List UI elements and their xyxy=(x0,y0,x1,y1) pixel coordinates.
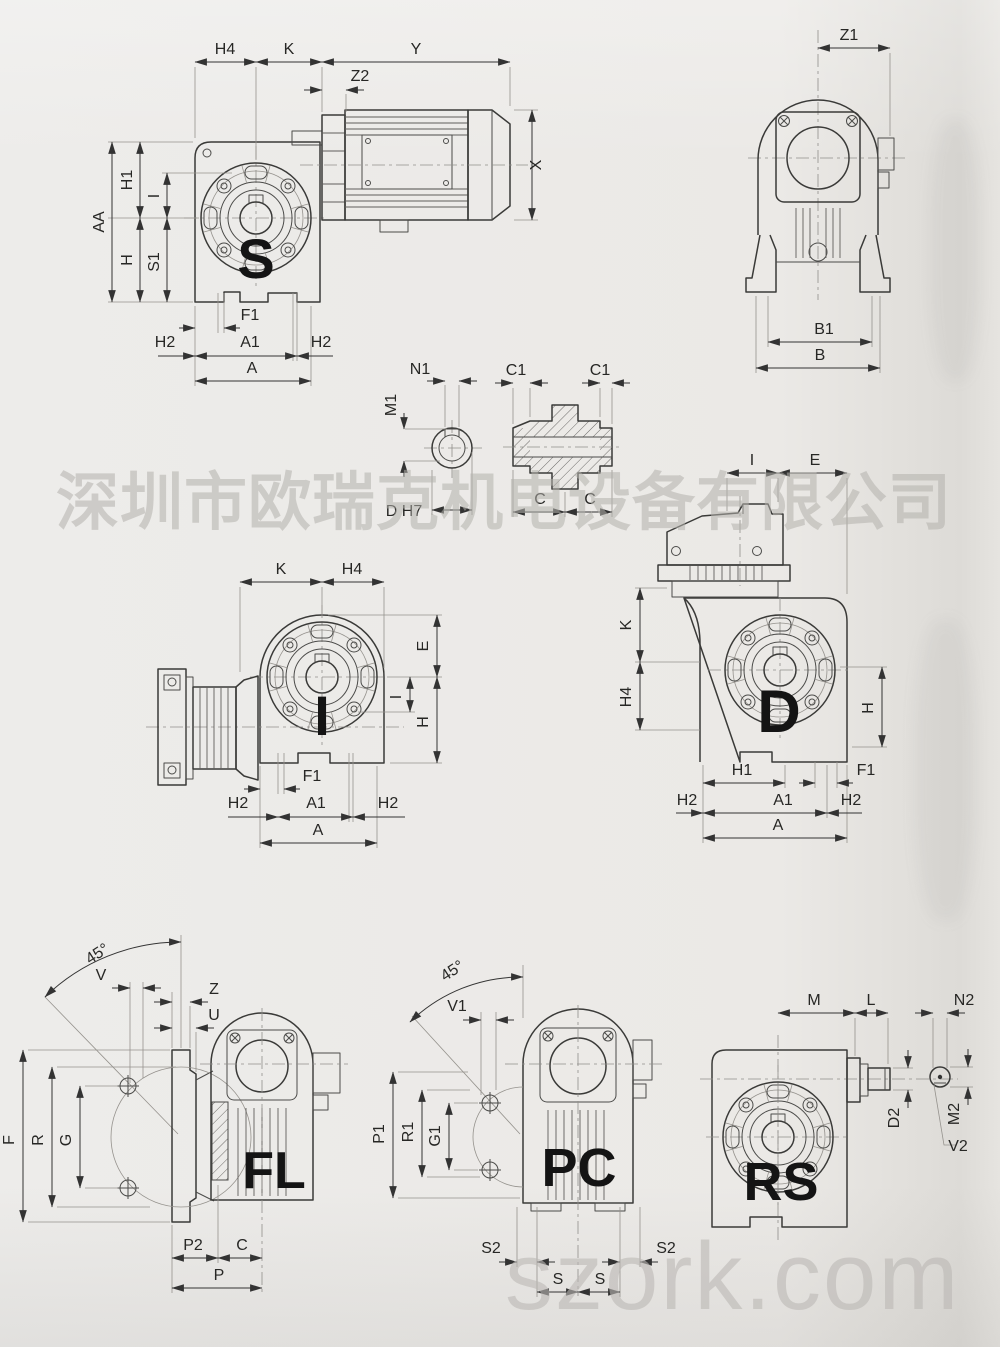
dim-label-f1: F1 xyxy=(241,307,260,324)
dim-label-m: M xyxy=(807,992,820,1009)
dim-label-c1: C1 xyxy=(506,362,527,379)
dim-label-45deg: 45° xyxy=(83,941,113,968)
dim-label-v2: V2 xyxy=(948,1138,968,1155)
view-label-fl: FL xyxy=(242,1142,306,1200)
dim-label-m1: M1 xyxy=(383,394,400,416)
dim-label-f1: F1 xyxy=(303,768,322,785)
dim-label-a1: A1 xyxy=(240,334,260,351)
view-i-gearbox: K H4 E I H F1 H2 A1 H2 A I xyxy=(146,561,442,848)
view-d-gearbox: I E K H4 H H1 F1 H2 A1 H2 A D xyxy=(618,452,887,843)
dim-label-f: F xyxy=(1,1135,18,1145)
dim-label-g1: G1 xyxy=(427,1125,444,1146)
dim-label-h4: H4 xyxy=(342,561,363,578)
dim-label-c: C xyxy=(584,491,596,508)
dim-label-x: X xyxy=(528,159,545,170)
dim-label-p2: P2 xyxy=(183,1237,203,1254)
view-rs-gearbox: M L N2 D2 M2 V2 RS xyxy=(700,992,974,1243)
view-fl-gearbox: 45° V Z U F R G P2 xyxy=(1,935,348,1296)
dim-label-45deg: 45° xyxy=(438,958,468,985)
view-s-gearbox-with-motor: H4 K Y Z2 X AA H1 H I S1 F1 H2 A1 H2 A S xyxy=(91,41,545,386)
dim-label-k: K xyxy=(618,619,635,630)
dim-label-r: R xyxy=(30,1134,47,1146)
dim-label-p1: P1 xyxy=(371,1124,388,1144)
dim-label-r1: R1 xyxy=(400,1122,417,1143)
dim-label-a1: A1 xyxy=(773,792,793,809)
dim-label-s: S xyxy=(595,1271,606,1288)
dim-label-aa: AA xyxy=(91,211,108,233)
dim-label-s1: S1 xyxy=(146,252,163,272)
dim-label-l: L xyxy=(867,992,876,1009)
view-label-d: D xyxy=(757,678,800,745)
dim-label-n1: N1 xyxy=(410,361,431,378)
dim-label-d-h7: D H7 xyxy=(386,503,423,520)
dim-label-h: H xyxy=(860,702,877,714)
dim-label-s: S xyxy=(553,1271,564,1288)
dim-label-a: A xyxy=(247,360,258,377)
dim-label-h4: H4 xyxy=(618,687,635,708)
dim-label-z1: Z1 xyxy=(840,27,859,44)
dim-label-k: K xyxy=(276,561,287,578)
dim-label-s2: S2 xyxy=(481,1240,501,1257)
dim-label-h4: H4 xyxy=(215,41,236,58)
dim-label-v: V xyxy=(96,967,107,984)
dim-label-p: P xyxy=(214,1267,225,1284)
dim-label-e: E xyxy=(415,641,432,652)
dim-label-a1: A1 xyxy=(306,795,326,812)
dim-label-n2: N2 xyxy=(954,992,975,1009)
dim-label-g: G xyxy=(58,1134,75,1146)
dim-label-c: C xyxy=(236,1237,248,1254)
dim-label-h1: H1 xyxy=(732,762,753,779)
view-pc-gearbox: 45° V1 P1 R1 G1 S2 S2 S S P xyxy=(371,958,676,1297)
dim-label-h2: H2 xyxy=(677,792,698,809)
dim-label-v1: V1 xyxy=(447,998,467,1015)
view-front-b: Z1 B1 B xyxy=(746,27,908,373)
dim-label-u: U xyxy=(208,1007,220,1024)
view-label-i: I xyxy=(314,684,330,747)
dim-label-h2: H2 xyxy=(841,792,862,809)
view-label-pc: PC xyxy=(541,1138,616,1198)
dim-label-c1: C1 xyxy=(590,362,611,379)
dim-label-h: H xyxy=(119,254,136,266)
dim-label-m2: M2 xyxy=(946,1103,963,1125)
dim-label-b: B xyxy=(815,347,826,364)
dim-label-a: A xyxy=(313,822,324,839)
dim-label-i: I xyxy=(750,452,754,469)
section-hollow-hub: C1 C1 C C xyxy=(495,362,630,517)
drawing-canvas: H4 K Y Z2 X AA H1 H I S1 F1 H2 A1 H2 A S xyxy=(0,0,1000,1347)
dim-label-f1: F1 xyxy=(857,762,876,779)
dim-label-c: C xyxy=(534,491,546,508)
dim-label-a: A xyxy=(773,817,784,834)
dim-label-k: K xyxy=(284,41,295,58)
dim-label-z: Z xyxy=(209,981,219,998)
dim-label-i: I xyxy=(388,695,405,699)
dim-label-d2: D2 xyxy=(886,1108,903,1129)
dim-label-e: E xyxy=(810,452,821,469)
dim-label-z2: Z2 xyxy=(351,68,370,85)
dim-label-h2: H2 xyxy=(228,795,249,812)
section-shaft-bore: N1 M1 D H7 xyxy=(383,361,482,520)
view-label-rs: RS xyxy=(743,1152,818,1212)
dim-label-h2: H2 xyxy=(311,334,332,351)
dim-label-i: I xyxy=(146,194,163,198)
dim-label-y: Y xyxy=(411,41,422,58)
dim-label-h2: H2 xyxy=(155,334,176,351)
dim-label-h1: H1 xyxy=(119,170,136,191)
dim-label-h: H xyxy=(415,716,432,728)
view-label-s: S xyxy=(237,227,274,290)
dim-label-s2: S2 xyxy=(656,1240,676,1257)
dim-label-h2: H2 xyxy=(378,795,399,812)
dim-label-b1: B1 xyxy=(814,321,834,338)
